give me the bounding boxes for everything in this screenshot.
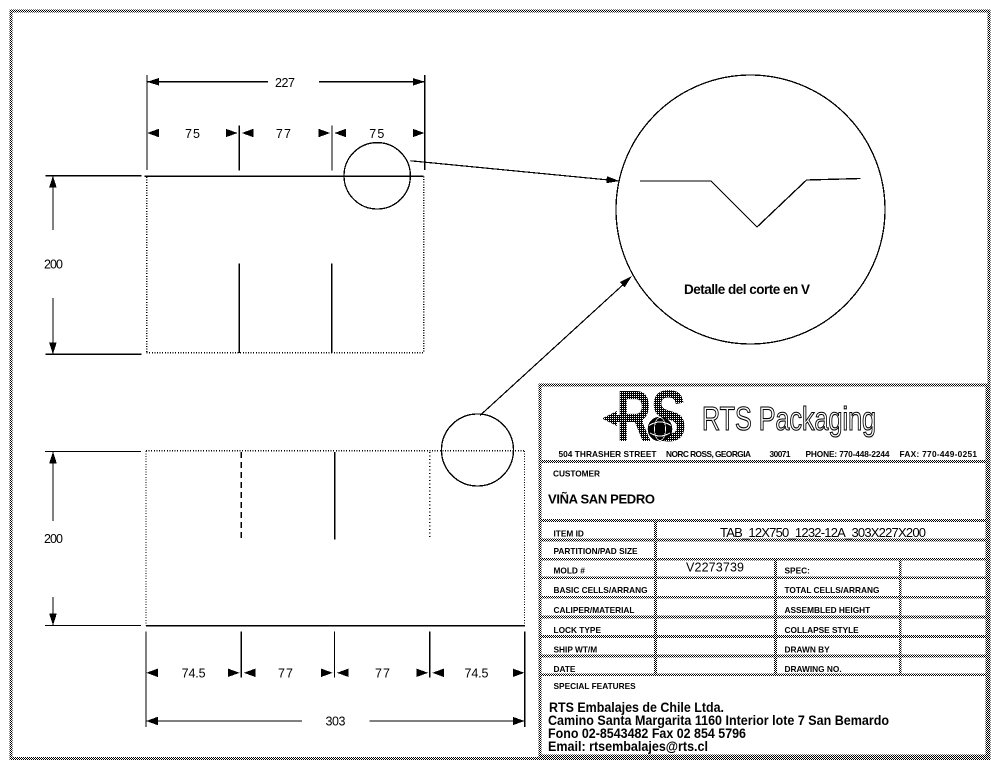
svg-text:74.5: 74.5 xyxy=(182,666,206,680)
svg-text:CALIPER/MATERIAL: CALIPER/MATERIAL xyxy=(554,605,635,615)
svg-text:BASIC CELLS/ARRANG: BASIC CELLS/ARRANG xyxy=(554,585,648,595)
svg-text:Email: rtsembalajes@rts.cl: Email: rtsembalajes@rts.cl xyxy=(548,739,708,754)
svg-text:FAX: 770-449-0251: FAX: 770-449-0251 xyxy=(900,449,978,459)
svg-text:200: 200 xyxy=(44,258,63,272)
svg-text:30071: 30071 xyxy=(770,449,791,459)
svg-text:77: 77 xyxy=(375,666,390,680)
svg-text:303: 303 xyxy=(326,714,346,728)
svg-text:RTS Packaging: RTS Packaging xyxy=(702,400,876,437)
svg-text:LOCK TYPE: LOCK TYPE xyxy=(554,625,602,635)
svg-text:SPEC:: SPEC: xyxy=(785,566,810,576)
svg-text:SHIP WT/M: SHIP WT/M xyxy=(554,645,598,655)
svg-text:74.5: 74.5 xyxy=(465,666,489,680)
svg-text:COLLAPSE STYLE: COLLAPSE STYLE xyxy=(785,625,860,635)
svg-text:MOLD #: MOLD # xyxy=(554,566,586,576)
svg-text:TAB_12X750_1232-12A_303X227X20: TAB_12X750_1232-12A_303X227X200 xyxy=(720,525,926,540)
svg-text:77: 77 xyxy=(276,127,291,141)
svg-text:75: 75 xyxy=(185,127,200,141)
svg-text:CUSTOMER: CUSTOMER xyxy=(553,469,600,479)
svg-text:PARTITION/PAD SIZE: PARTITION/PAD SIZE xyxy=(554,546,639,556)
svg-text:V2273739: V2273739 xyxy=(686,561,744,575)
svg-text:Detalle del corte en V: Detalle del corte en V xyxy=(684,282,810,297)
svg-text:77: 77 xyxy=(278,666,293,680)
svg-text:PHONE: 770-448-2244: PHONE: 770-448-2244 xyxy=(806,449,890,459)
svg-text:ASSEMBLED HEIGHT: ASSEMBLED HEIGHT xyxy=(785,605,871,615)
svg-text:DRAWING NO.: DRAWING NO. xyxy=(785,664,842,674)
svg-text:504 THRASHER STREET: 504 THRASHER STREET xyxy=(559,449,657,459)
svg-text:DATE: DATE xyxy=(554,664,576,674)
svg-text:TOTAL CELLS/ARRANG: TOTAL CELLS/ARRANG xyxy=(785,585,880,595)
svg-text:R: R xyxy=(617,377,652,457)
svg-text:NORC ROSS, GEORGIA: NORC ROSS, GEORGIA xyxy=(666,449,751,459)
svg-text:DRAWN BY: DRAWN BY xyxy=(785,645,831,655)
svg-text:S: S xyxy=(651,377,687,457)
svg-text:ITEM ID: ITEM ID xyxy=(554,529,584,539)
svg-text:VIÑA SAN PEDRO: VIÑA SAN PEDRO xyxy=(548,492,655,507)
svg-text:SPECIAL FEATURES: SPECIAL FEATURES xyxy=(554,681,637,691)
svg-text:200: 200 xyxy=(44,532,63,546)
svg-text:75: 75 xyxy=(369,127,384,141)
svg-text:227: 227 xyxy=(275,76,295,90)
